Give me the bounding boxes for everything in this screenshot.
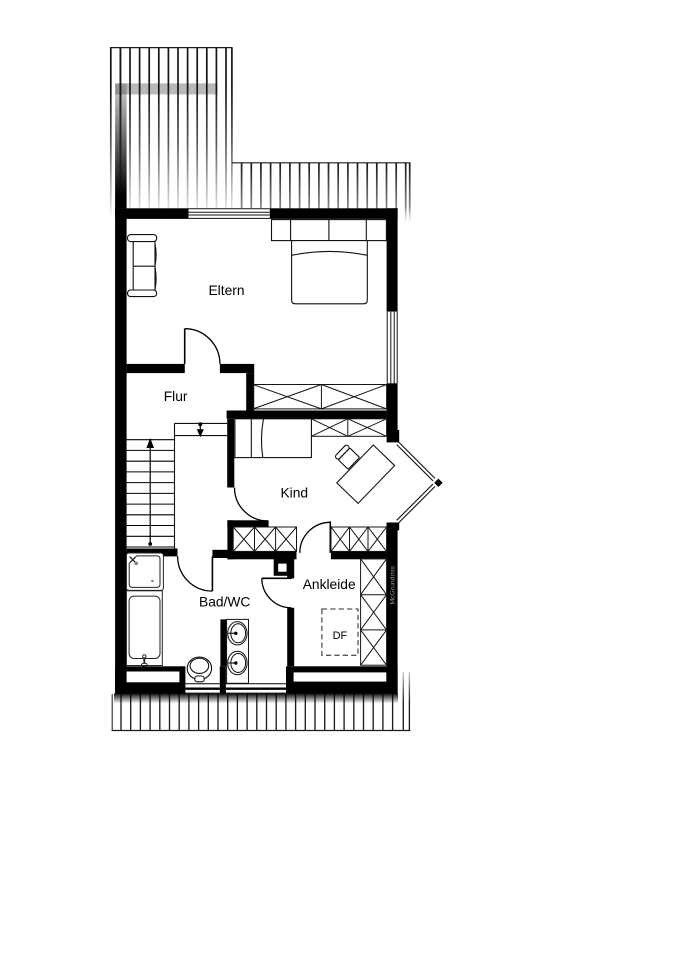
- svg-text:Flur: Flur: [164, 389, 188, 404]
- svg-text:DF: DF: [333, 630, 348, 642]
- svg-text:McGrundriss: McGrundriss: [390, 565, 397, 604]
- svg-text:Kind: Kind: [280, 485, 308, 500]
- svg-text:Ankleide: Ankleide: [303, 577, 356, 592]
- svg-text:Bad/WC: Bad/WC: [199, 594, 250, 609]
- svg-text:Eltern: Eltern: [208, 283, 244, 298]
